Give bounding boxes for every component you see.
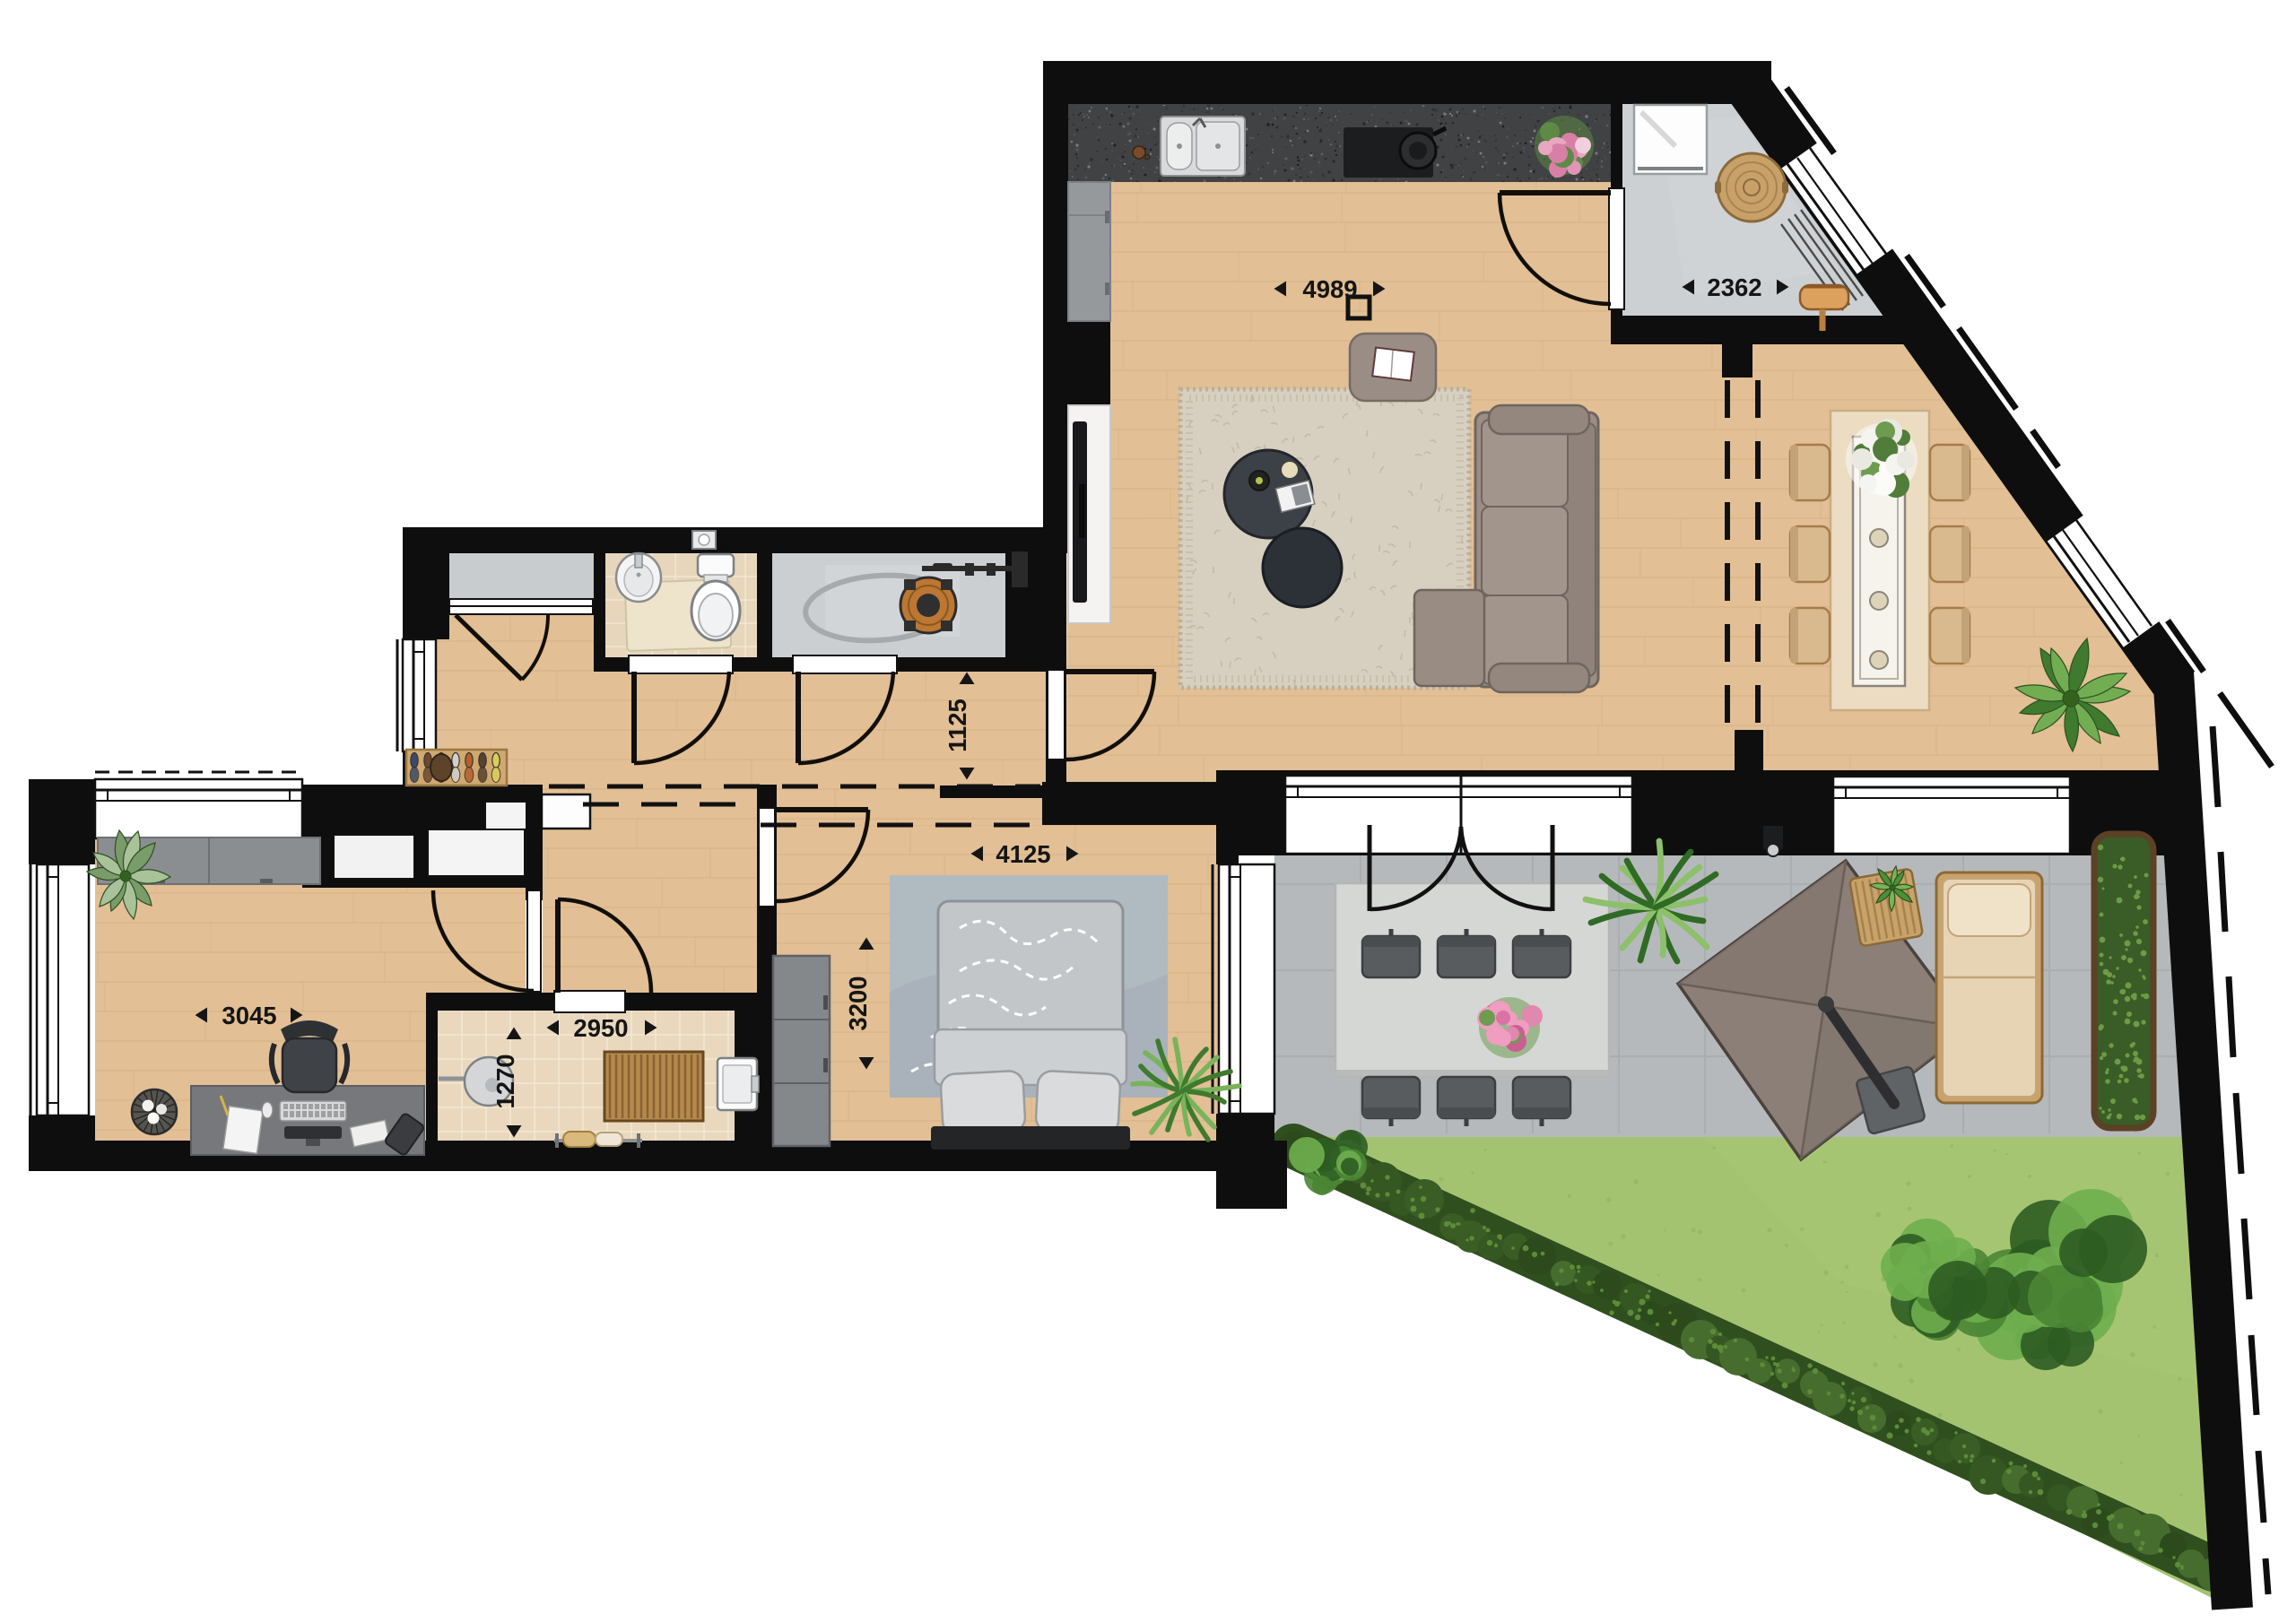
- svg-text:3200: 3200: [844, 976, 872, 1030]
- svg-text:2950: 2950: [573, 1014, 628, 1042]
- svg-text:2362: 2362: [1707, 273, 1761, 301]
- svg-text:1270: 1270: [491, 1054, 519, 1108]
- svg-text:1125: 1125: [944, 699, 971, 752]
- svg-text:3045: 3045: [222, 1002, 276, 1029]
- svg-text:4989: 4989: [1302, 275, 1357, 303]
- svg-text:4125: 4125: [996, 840, 1050, 868]
